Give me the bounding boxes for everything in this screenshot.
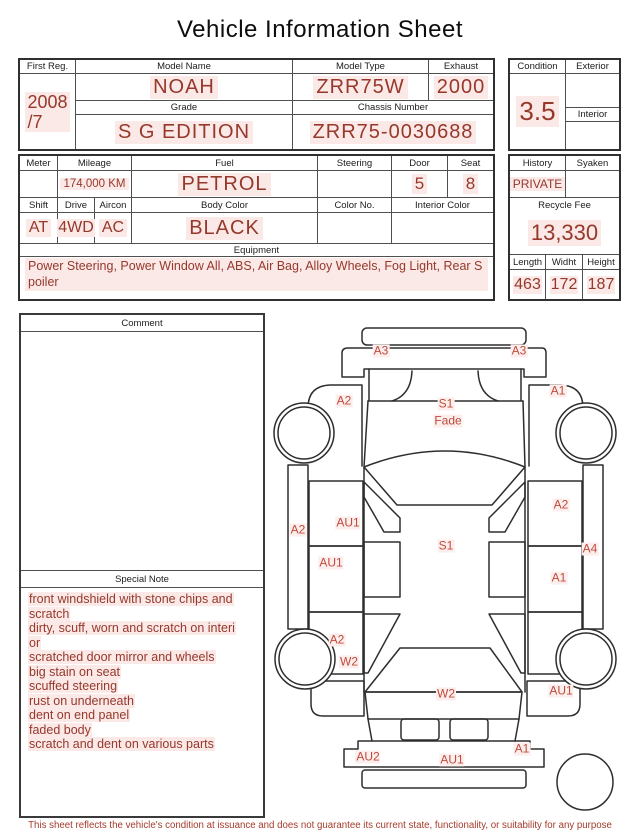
interior-value — [566, 122, 619, 149]
model-type-label: Model Type — [293, 60, 429, 74]
damage-marker-rear-wheel-left: W2 — [339, 656, 359, 669]
chassis-number-value: ZRR75-0030688 — [293, 115, 493, 149]
special-note-line: front windshield with stone chips and sc… — [28, 592, 235, 621]
damage-marker-roof: S1 — [438, 540, 455, 553]
door-label: Door — [392, 156, 448, 171]
exhaust-label: Exhaust — [429, 60, 493, 74]
damage-marker-hood-fade: Fade — [433, 415, 462, 428]
body-color-value: BLACK — [132, 213, 318, 244]
body-color-label: Body Color — [132, 198, 318, 213]
drive-label: Drive — [58, 198, 95, 213]
special-note-label: Special Note — [21, 571, 263, 588]
damage-marker-front-bumper-left: A3 — [373, 345, 390, 358]
special-note-line: faded body — [28, 723, 235, 738]
interior-color-value — [392, 213, 493, 244]
syaken-label: Syaken — [566, 156, 619, 171]
steering-value — [318, 171, 392, 198]
fuel-label: Fuel — [132, 156, 318, 171]
tail-lamp-right-shape — [450, 719, 488, 740]
damage-marker-right-rocker-panel: A4 — [582, 543, 599, 556]
front-door-right-shape — [528, 481, 582, 546]
steering-label: Steering — [318, 156, 392, 171]
side-window-right-rear — [489, 614, 525, 673]
spare-tire-shape — [557, 754, 613, 810]
door-value: 5 — [392, 171, 448, 198]
shift-value: AT — [20, 213, 58, 244]
tail-lamp-left-shape — [401, 719, 439, 740]
vehicle-information-sheet: Vehicle Information Sheet First Reg. Mod… — [0, 0, 640, 835]
rear-hatch-sides — [368, 719, 519, 741]
chassis-number-label: Chassis Number — [293, 101, 493, 115]
page-title: Vehicle Information Sheet — [0, 16, 640, 44]
comment-box: Comment Special Note front windshield wi… — [19, 313, 265, 818]
damage-marker-rear-window: W2 — [436, 688, 456, 701]
damage-marker-front-bumper-right: A3 — [511, 345, 528, 358]
color-no-label: Color No. — [318, 198, 392, 213]
damage-marker-sliding-door-left: AU1 — [318, 557, 343, 570]
special-note-line: scratched door mirror and wheels — [28, 650, 235, 665]
damage-marker-rear-bumper-right: A1 — [514, 743, 531, 756]
special-note-line: scuffed steering — [28, 679, 235, 694]
recycle-fee-label: Recycle Fee — [510, 198, 619, 212]
condition-label: Condition — [510, 60, 566, 74]
damage-marker-front-door-left: AU1 — [335, 517, 360, 530]
color-no-value — [318, 213, 392, 244]
width-label: Widht — [546, 255, 583, 270]
special-note-text: front windshield with stone chips and sc… — [21, 588, 263, 816]
damage-marker-front-fender-right: A1 — [550, 385, 567, 398]
history-label: History — [510, 156, 566, 171]
car-damage-diagram: A3A3A2A1S1FadeA2AU1A2S1A4AU1A1A2W2W2AU1A… — [264, 315, 640, 820]
equipment-value: Power Steering, Power Window All, ABS, A… — [20, 257, 493, 299]
damage-marker-rear-bumper-left: AU2 — [355, 751, 380, 764]
first-reg-month: /7 — [27, 112, 67, 132]
interior-color-label: Interior Color — [392, 198, 493, 213]
meter-label: Meter — [20, 156, 58, 171]
history-fee-table: History Syaken PRIVATE Recycle Fee 13,33… — [508, 154, 621, 301]
meter-value — [20, 171, 58, 198]
history-value: PRIVATE — [510, 171, 566, 198]
windshield-shape — [364, 451, 525, 505]
fuel-value: PETROL — [132, 171, 318, 198]
rocker-panel-left-shape — [288, 465, 308, 629]
model-name-value: NOAH — [76, 74, 293, 101]
height-value: 187 — [583, 270, 619, 299]
aircon-value: AC — [95, 213, 132, 244]
damage-marker-front-fender-left: A2 — [336, 395, 353, 408]
special-note-line: dirty, scuff, worn and scratch on interi… — [28, 621, 235, 650]
width-value: 172 — [546, 270, 583, 299]
damage-marker-rear-quarter-left: A2 — [329, 634, 346, 647]
damage-marker-front-door-right: A2 — [553, 499, 570, 512]
mileage-value: 174,000 KM — [58, 171, 132, 198]
vehicle-spec-table: Meter Mileage Fuel Steering Door Seat 17… — [18, 154, 495, 301]
condition-score: 3.5 — [510, 74, 566, 149]
shift-label: Shift — [20, 198, 58, 213]
drive-value: 4WD — [58, 213, 95, 244]
mileage-label: Mileage — [58, 156, 132, 171]
comment-text — [21, 332, 263, 571]
exhaust-value: 2000 — [429, 74, 493, 101]
vehicle-identity-table: First Reg. Model Name Model Type Exhaust… — [18, 58, 495, 151]
rear-window-shape — [365, 648, 522, 692]
front-strip-shape — [362, 328, 526, 345]
model-type-value: ZRR75W — [293, 74, 429, 101]
disclaimer-text: This sheet reflects the vehicle's condit… — [0, 820, 640, 831]
syaken-value — [566, 171, 619, 198]
exterior-label: Exterior — [566, 60, 619, 74]
side-window-left-front — [364, 482, 400, 532]
first-reg-year: 2008 — [27, 92, 67, 112]
rear-strip-shape — [362, 770, 526, 788]
length-label: Length — [510, 255, 546, 270]
grade-value: S G EDITION — [76, 115, 293, 149]
special-note-line: scratch and dent on various parts — [28, 737, 235, 752]
damage-marker-left-rocker-panel: A2 — [290, 524, 307, 537]
seat-label: Seat — [448, 156, 493, 171]
recycle-fee-value: 13,330 — [510, 212, 619, 255]
exterior-value — [566, 74, 619, 108]
damage-marker-rear-door-right: A1 — [551, 572, 568, 585]
equipment-label: Equipment — [20, 244, 493, 257]
seat-value: 8 — [448, 171, 493, 198]
special-note-line: rust on underneath — [28, 694, 235, 709]
front-door-left-shape — [309, 481, 363, 546]
model-name-label: Model Name — [76, 60, 293, 74]
damage-marker-rear-quarter-right: AU1 — [548, 685, 573, 698]
damage-marker-rear-bumper-center: AU1 — [439, 754, 464, 767]
side-window-left-mid — [364, 542, 400, 597]
height-label: Height — [583, 255, 619, 270]
side-window-right-mid — [489, 542, 525, 597]
first-reg-label: First Reg. — [20, 60, 76, 74]
side-window-left-rear — [364, 614, 400, 673]
condition-table: Condition Exterior 3.5 Interior — [508, 58, 621, 151]
interior-label: Interior — [566, 108, 619, 122]
special-note-line: big stain on seat — [28, 665, 235, 680]
special-note-line: dent on end panel — [28, 708, 235, 723]
length-value: 463 — [510, 270, 546, 299]
side-window-right-front — [489, 482, 525, 532]
comment-label: Comment — [21, 315, 263, 332]
first-reg-value: 2008 /7 — [20, 74, 76, 149]
grade-label: Grade — [76, 101, 293, 115]
damage-marker-hood: S1 — [438, 398, 455, 411]
aircon-label: Aircon — [95, 198, 132, 213]
